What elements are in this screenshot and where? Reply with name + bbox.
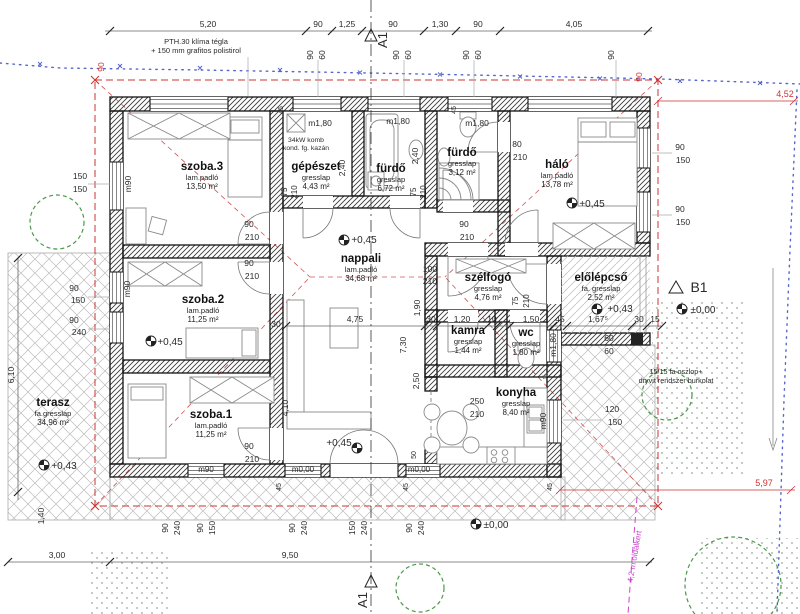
annotation-label: 90 — [69, 315, 79, 325]
level-marker-icon — [39, 460, 49, 470]
room-floor-finish: gresslap — [512, 339, 540, 348]
room-name: fürdő — [447, 147, 476, 159]
annotation-label: +0,45 — [579, 199, 605, 210]
annotation-label: 60 — [604, 333, 614, 343]
room-floor-finish: lam.padló — [541, 171, 574, 180]
annotation-label: 150 — [676, 217, 690, 227]
boundary-x-marks — [38, 62, 762, 85]
annotation-label: 250 — [470, 396, 484, 406]
room-area: 4,43 m² — [302, 182, 329, 191]
annotation-label: PTH.30 klíma tégla — [164, 37, 229, 46]
annotation-label: 90 — [69, 283, 79, 293]
room-area: 13,78 m² — [541, 180, 573, 189]
room-area: 4,76 m² — [474, 293, 501, 302]
annotation-label: +0,43 — [51, 461, 77, 472]
annotation-label: 75 — [280, 187, 289, 196]
annotation-label: B1 — [690, 279, 707, 295]
room-name: szélfogó — [465, 272, 512, 284]
room-name: előlépcső — [574, 272, 627, 284]
annotation-label: 15 — [650, 314, 660, 324]
gravel-area-east — [652, 300, 744, 475]
annotation-label: 60 — [317, 50, 327, 60]
annotation-label: 90 — [287, 523, 297, 533]
annotation-label: 4,52 — [776, 89, 794, 99]
room-area: 1,44 m² — [454, 346, 481, 355]
room-name: szoba.1 — [190, 409, 233, 421]
annotation-label: m90 — [538, 412, 548, 429]
annotation-label: 1,67⁵ — [588, 314, 608, 324]
annotation-label: 90 — [473, 19, 483, 29]
annotation-label: 210 — [245, 232, 259, 242]
annotation-label: +0,43 — [607, 304, 633, 315]
annotation-label: 210 — [245, 454, 259, 464]
annotation-label: 90 — [195, 523, 205, 533]
annotation-label: 1,90 — [412, 299, 422, 316]
wall-szoba3-szoba2 — [123, 245, 270, 258]
room-floor-finish: lam.padló — [345, 265, 378, 274]
annotation-label: m0,00 — [408, 465, 431, 474]
tree-icon — [396, 564, 444, 612]
annotation-label: 45 — [276, 483, 283, 491]
annotation-label: 75 — [511, 296, 520, 305]
annotation-label: 90 — [160, 523, 170, 533]
annotation-label: 1,20 — [454, 314, 471, 324]
annotation-label: ±0,00 — [484, 520, 509, 531]
room-floor-finish: gresslap — [377, 175, 405, 184]
annotation-label: 210 — [419, 185, 428, 199]
annotation-label: +0,45 — [157, 337, 183, 348]
terrace-paving-east — [561, 345, 655, 520]
annotation-label: 90 — [244, 258, 254, 268]
annotation-label: 45 — [403, 483, 410, 491]
annotation-label: 60 — [473, 50, 483, 60]
annotation-label: 7,30 — [398, 336, 408, 353]
room-area: 11,25 m² — [188, 315, 219, 324]
annotation-label: 90 — [675, 204, 685, 214]
annotation-label: 1,50 — [523, 314, 540, 324]
annotation-label: m1,80 — [465, 118, 489, 128]
annotation-label: 75 — [409, 187, 418, 196]
annotation-label: 210 — [470, 409, 484, 419]
terrace-paving-south — [110, 477, 565, 520]
room-name: gépészet — [291, 161, 340, 173]
annotation-label: 100 — [423, 264, 437, 274]
room-name: kamra — [451, 325, 485, 337]
room-area: 3,12 m² — [448, 168, 475, 177]
room-name: terasz — [36, 397, 69, 409]
annotation-label: m90 — [122, 280, 132, 297]
annotation-label: 90 — [244, 441, 254, 451]
annotation-label: 90 — [459, 219, 469, 229]
room-area: 34,68 m² — [345, 274, 377, 283]
annotation-label: * — [542, 371, 548, 388]
utility-boundary-line-east — [777, 90, 797, 614]
annotation-label: A1 — [375, 32, 390, 48]
level-marker-icon — [567, 198, 577, 208]
annotation-label: 4,05 — [566, 19, 583, 29]
annotation-label: 45 — [278, 106, 285, 114]
annotation-label: 45 — [451, 106, 458, 114]
wall-konyha-north — [425, 365, 561, 377]
annotation-label: 90 — [675, 142, 685, 152]
annotation-label: 150 — [347, 521, 357, 535]
annotation-label: 90 — [305, 50, 315, 60]
level-marker-icon — [592, 304, 602, 314]
room-name: szoba.2 — [182, 294, 224, 306]
room-area: 1,80 m² — [512, 348, 539, 357]
annotation-label: 4,75 — [347, 314, 364, 324]
annotation-label: 210 — [522, 294, 531, 308]
annotation-label: 240 — [359, 521, 369, 535]
annotation-label: 5,97 — [755, 478, 773, 488]
annotation-label: 6,10 — [6, 366, 16, 383]
annotation-label: + 150 mm grafitos polistirol — [151, 46, 241, 55]
gravel-area-southwest — [88, 550, 170, 614]
room-floor-finish: gresslap — [454, 337, 482, 346]
annotation-label: 90 — [313, 19, 323, 29]
annotation-label: 9,50 — [282, 550, 299, 560]
annotation-label: ±0,00 — [691, 305, 716, 316]
section-marker-b1 — [669, 281, 683, 293]
gravel-area-southeast — [698, 538, 800, 614]
floor-plan-svg: szoba.3lam.padló13,50 m²gépészetgresslap… — [0, 0, 800, 614]
room-name: háló — [545, 159, 569, 171]
room-floor-finish: gresslap — [474, 284, 502, 293]
level-marker-icon — [146, 336, 156, 346]
annotation-label: 1,40 — [36, 507, 46, 524]
annotation-label: +0,45 — [351, 235, 377, 246]
annotation-label: 210 — [245, 271, 259, 281]
room-name: szoba.3 — [181, 161, 223, 173]
annotation-label: 5,20 — [200, 19, 217, 29]
level-marker-icon — [471, 519, 481, 529]
room-floor-finish: gresslap — [302, 173, 330, 182]
room-name: nappali — [341, 253, 381, 265]
annotation-label: kond. fg. kazán — [283, 145, 329, 152]
wall-gepeszet-furdo — [352, 111, 364, 196]
annotation-label: 90 — [388, 19, 398, 29]
room-floor-finish: fa.gresslap — [35, 409, 72, 418]
annotation-label: 240 — [72, 327, 86, 337]
wardrobe — [553, 223, 635, 249]
porch-post — [631, 333, 643, 345]
annotation-label: 240 — [416, 521, 426, 535]
annotation-label: 15/15 fa oszlop+ — [650, 367, 703, 376]
annotation-label: 150 — [676, 155, 690, 165]
annotation-label: 150 — [73, 184, 87, 194]
room-floor-finish: gresslap — [448, 159, 476, 168]
annotation-label: 120 — [605, 404, 619, 414]
annotation-label: 90 — [391, 50, 401, 60]
annotation-label: 34kW komb — [288, 137, 324, 144]
sofa — [287, 300, 304, 412]
chair — [148, 216, 166, 234]
wall-szoba2-szoba1 — [123, 360, 270, 373]
annotation-label: 30 — [271, 319, 281, 329]
annotation-label: 60 — [403, 50, 413, 60]
dining-table — [437, 411, 467, 445]
room-floor-finish: lam.padló — [186, 173, 219, 182]
annotation-label: A1 — [355, 592, 370, 608]
room-name: konyha — [496, 387, 537, 399]
chair — [463, 437, 479, 453]
annotation-label: m0,00 — [292, 465, 315, 474]
room-area: 11,25 m² — [196, 430, 227, 439]
level-marker-icon — [352, 443, 362, 453]
annotation-label: m90 — [198, 465, 214, 474]
annotation-label: 210 — [290, 185, 299, 199]
annotation-label: 45 — [555, 314, 565, 324]
annotation-label: 150 — [73, 171, 87, 181]
desk — [126, 208, 146, 244]
level-marker-icon — [339, 235, 349, 245]
annotation-label: 210 — [423, 276, 437, 286]
room-name: fürdő — [376, 163, 405, 175]
annotation-label: 80 — [512, 139, 522, 149]
annotation-label: 4,2 m oldalkert — [626, 529, 644, 583]
annotation-label: 3,00 — [49, 550, 66, 560]
wall-konyha-stub-top — [425, 377, 437, 391]
annotation-label: 60 — [604, 346, 614, 356]
annotation-label: 150 — [207, 521, 217, 535]
room-floor-finish: lam.padló — [195, 421, 228, 430]
annotation-label: m1,80 — [548, 333, 558, 357]
annotation-label: 90 — [606, 50, 616, 60]
annotation-label: 90 — [244, 219, 254, 229]
room-floor-finish: fa. gresslap — [582, 284, 621, 293]
annotation-label: 2,40 — [337, 159, 347, 176]
annotation-label: 90 — [404, 523, 414, 533]
chair — [424, 404, 440, 420]
annotation-label: 4,10 — [280, 399, 290, 416]
room-area: 13,50 m² — [186, 182, 218, 191]
annotation-label: 150 — [608, 417, 622, 427]
room-name: wc — [517, 327, 534, 339]
annotation-label: 240 — [172, 521, 182, 535]
annotation-label: 210 — [460, 232, 474, 242]
tree-icon — [30, 195, 84, 249]
floor-plan-page: szoba.3lam.padló13,50 m²gépészetgresslap… — [0, 0, 800, 614]
wardrobe — [128, 113, 230, 139]
annotation-label: 30 — [634, 314, 644, 324]
annotation-label: 2,50 — [411, 372, 421, 389]
chair — [424, 437, 440, 453]
annotation-label: 90 — [461, 50, 471, 60]
annotation-label: +0,45 — [326, 438, 352, 449]
room-floor-finish: gresslap — [502, 399, 530, 408]
annotation-label: 240 — [299, 521, 309, 535]
annotation-label: 45 — [547, 483, 554, 491]
annotation-label: 150 — [71, 295, 85, 305]
room-area: 2,52 m² — [587, 293, 614, 302]
room-area: 34,96 m² — [37, 418, 69, 427]
annotation-label: m1,80 — [386, 116, 410, 126]
level-marker-icon — [677, 304, 687, 314]
wardrobe — [190, 377, 274, 403]
room-area: 6,72 m² — [377, 184, 404, 193]
annotation-label: 1,30 — [432, 19, 449, 29]
room-floor-finish: lam.padló — [187, 306, 220, 315]
annotation-label: 1,25 — [339, 19, 356, 29]
annotation-label: 10 — [487, 314, 497, 324]
annotation-label: 90 — [634, 72, 644, 82]
room-area: 8,40 m² — [502, 408, 529, 417]
annotation-label: 90 — [96, 62, 106, 72]
annotation-label: 210 — [513, 152, 527, 162]
annotation-label: m90 — [123, 175, 133, 192]
annotation-label: m1,80 — [308, 118, 332, 128]
annotation-label: 50 — [411, 451, 418, 459]
annotation-label: 30 — [426, 314, 436, 324]
entry-closet — [456, 259, 526, 273]
annotation-label: dryvit rendszer burkolat — [639, 376, 714, 385]
annotation-label: 2,40 — [410, 147, 420, 164]
wardrobe — [128, 262, 202, 286]
